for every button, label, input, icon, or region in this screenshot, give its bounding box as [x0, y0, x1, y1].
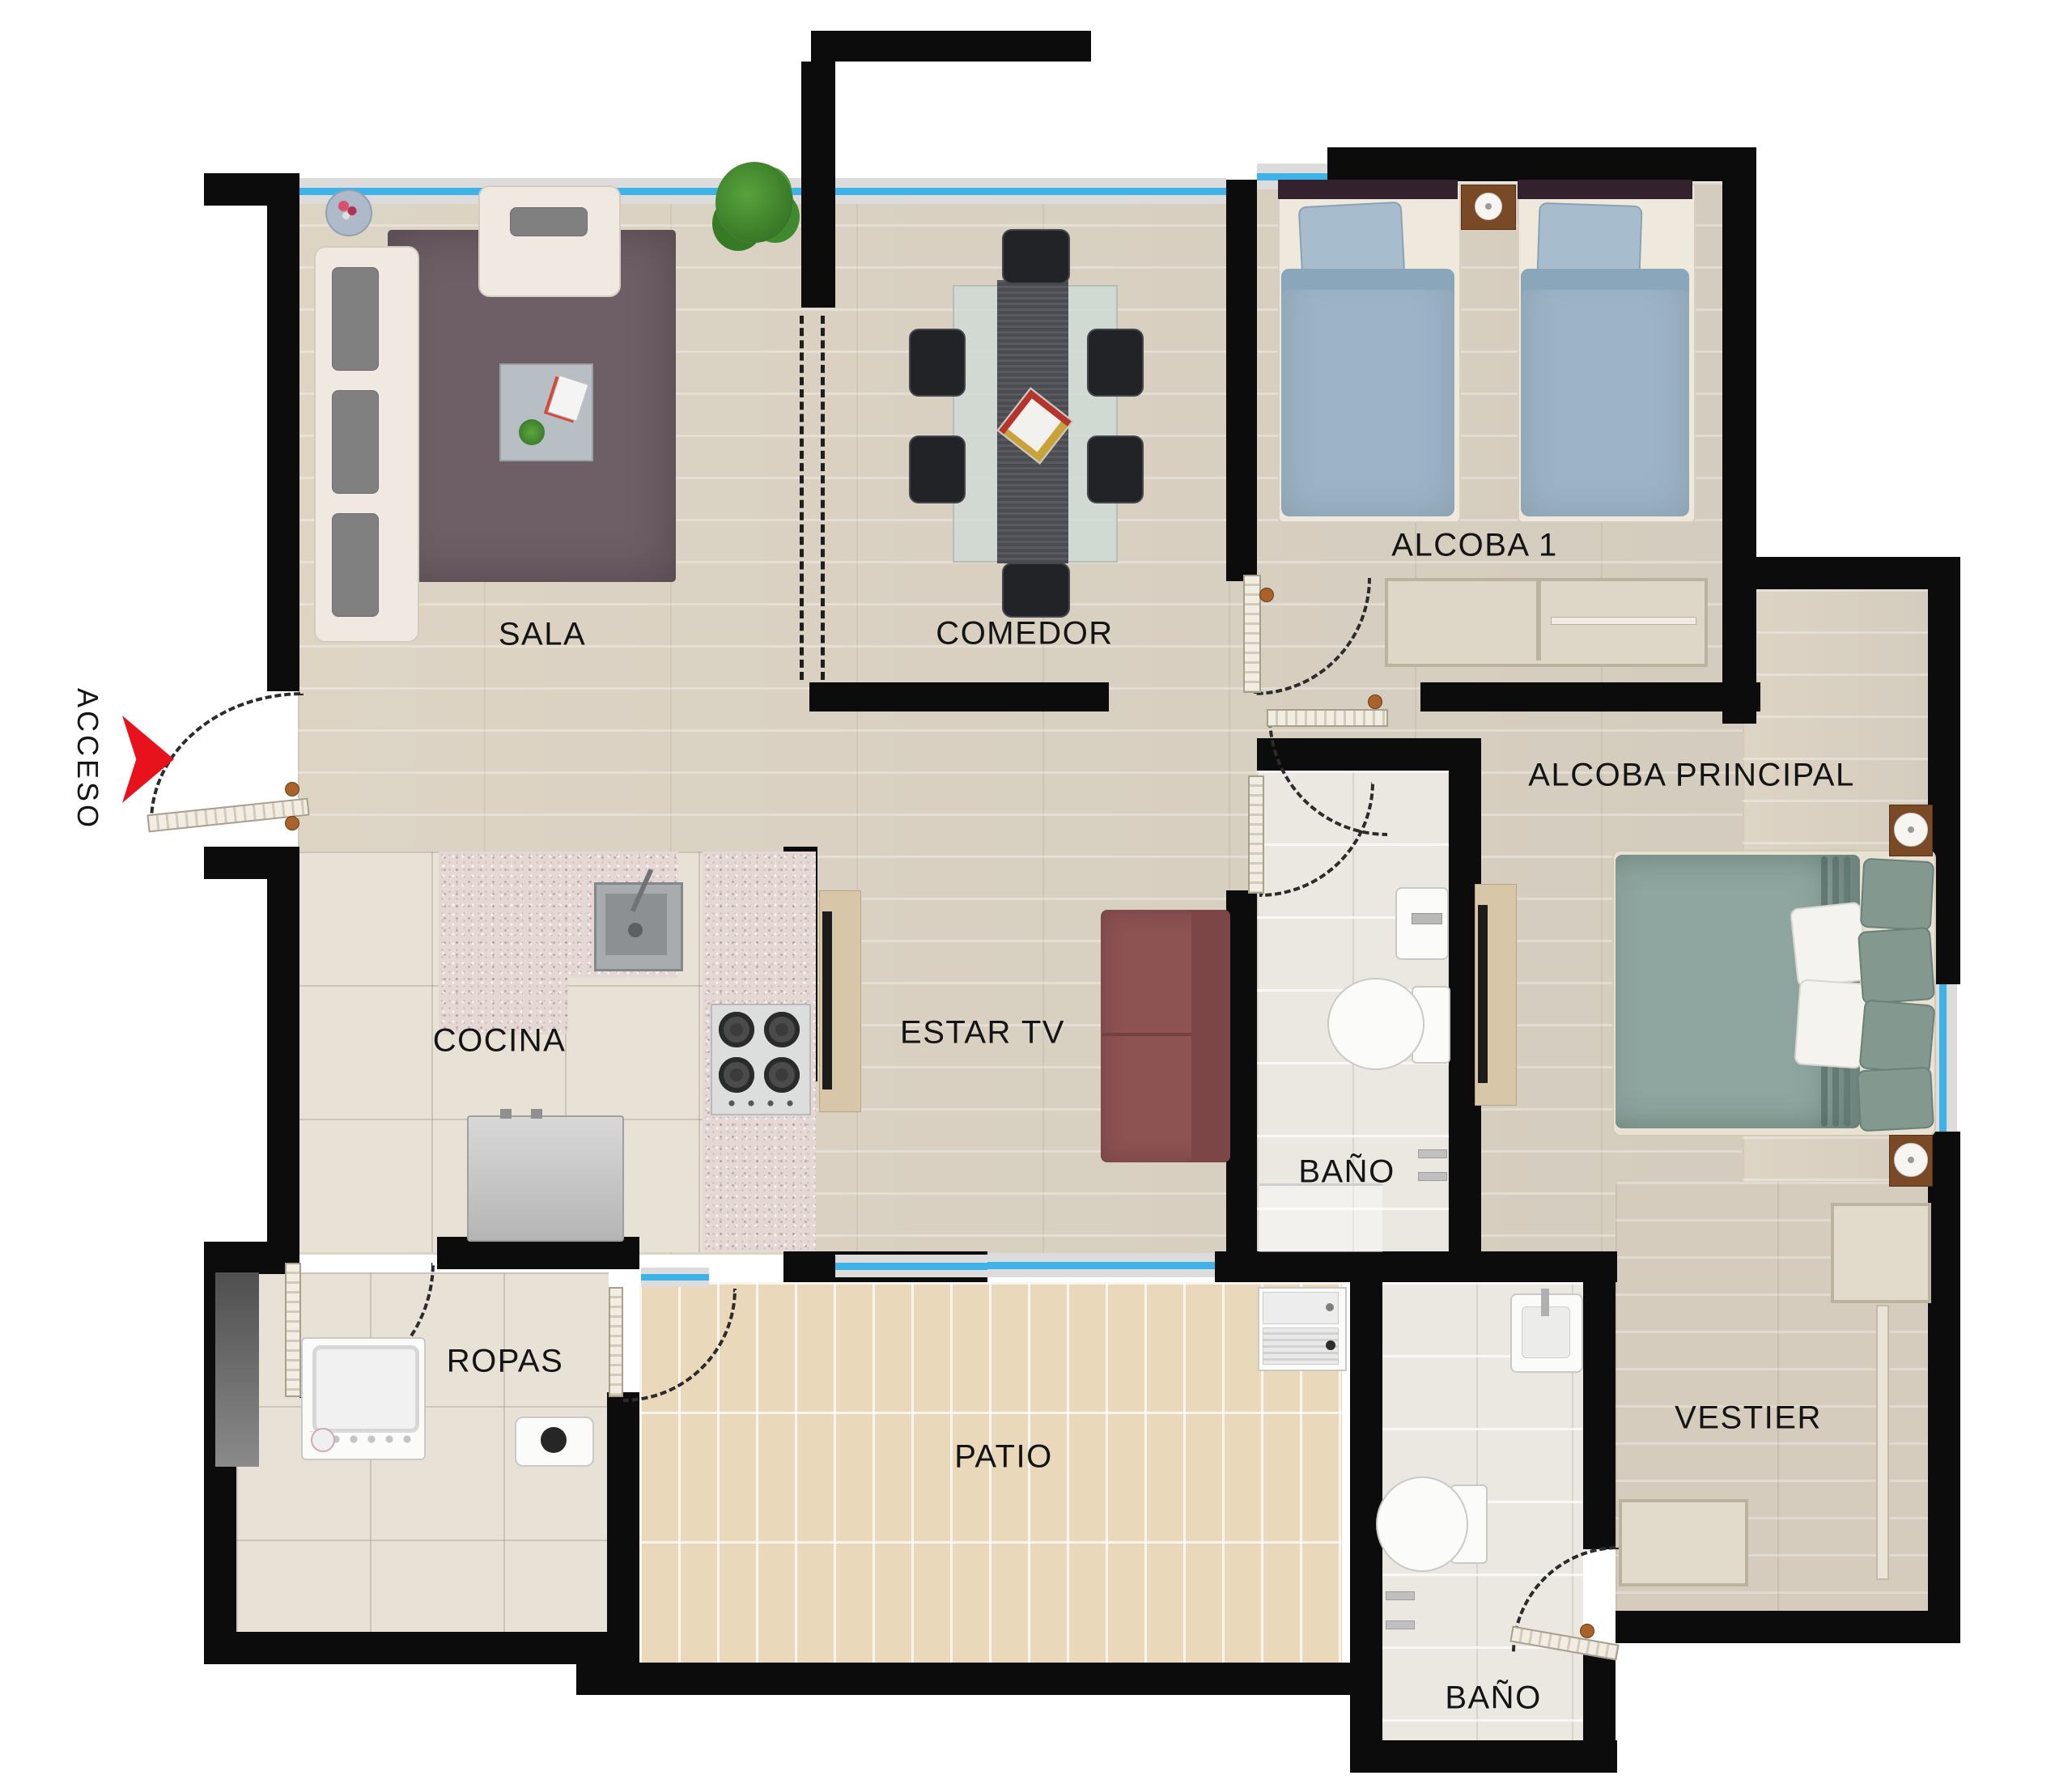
label-bano-social: BAÑO	[1298, 1154, 1395, 1191]
floor-plan: ACCESO SALA COMEDOR ALCOBA 1 ALCOBA PRIN…	[0, 0, 2072, 1784]
lamp	[1894, 813, 1928, 847]
towel-bar	[1386, 1620, 1415, 1629]
table-plant	[519, 419, 545, 445]
wall	[1226, 180, 1257, 581]
wall	[809, 682, 1109, 711]
armchair-cushion	[510, 207, 588, 236]
door-knob	[1368, 694, 1382, 709]
burner	[719, 1057, 754, 1093]
towel-bar	[1386, 1591, 1415, 1600]
headboard	[1518, 180, 1692, 199]
headboard	[1278, 180, 1458, 199]
bano-social-door	[1248, 775, 1264, 894]
dining-chair	[909, 435, 966, 503]
wall	[437, 1237, 639, 1269]
wall	[267, 847, 299, 1272]
fridge-handle	[531, 1109, 542, 1119]
burner	[719, 1012, 754, 1047]
sofa-cushion	[332, 390, 379, 494]
duvet	[1521, 269, 1689, 516]
toilet-bowl	[1327, 978, 1424, 1070]
window-estar-tv-left	[835, 1255, 987, 1277]
wall	[801, 62, 835, 308]
alcoba-principal-door	[1267, 709, 1388, 727]
wall	[1583, 1654, 1616, 1740]
drain-dot	[1326, 1303, 1334, 1311]
faucet	[1541, 1289, 1549, 1316]
wall	[1350, 1740, 1617, 1773]
dining-chair	[909, 329, 966, 397]
wall	[1327, 147, 1756, 181]
wall	[204, 1632, 609, 1664]
cocina-door	[285, 1263, 301, 1397]
tv	[1478, 905, 1488, 1083]
label-comedor: COMEDOR	[936, 616, 1113, 652]
wall	[811, 31, 1091, 62]
lamp	[1894, 1143, 1928, 1177]
pillow	[1857, 1067, 1934, 1132]
sofa-cushion	[332, 267, 379, 371]
sofa-seat-split	[1102, 1033, 1191, 1036]
door-knob	[285, 782, 299, 796]
window-comedor	[835, 178, 1226, 204]
heater-burner	[541, 1427, 567, 1453]
fridge-handle	[500, 1109, 512, 1119]
stove-knobs	[722, 1099, 800, 1107]
closet-divider	[1536, 581, 1541, 661]
wall	[1722, 147, 1756, 724]
label-sala: SALA	[499, 617, 586, 653]
door-knob	[285, 816, 299, 830]
toilet-bowl	[1376, 1476, 1468, 1572]
label-alcoba1: ALCOBA 1	[1391, 528, 1557, 564]
drain-dot	[1326, 1340, 1335, 1350]
dining-chair	[1002, 563, 1070, 618]
armchair	[478, 185, 621, 297]
label-patio: PATIO	[954, 1439, 1053, 1476]
refrigerator	[467, 1115, 624, 1242]
label-cocina: COCINA	[433, 1023, 567, 1060]
label-bano-principal: BAÑO	[1445, 1680, 1541, 1717]
dining-chair	[1087, 435, 1144, 503]
patio-door	[609, 1287, 623, 1397]
burner	[764, 1012, 800, 1047]
wall	[1928, 1182, 1960, 1643]
sofa-estar	[1101, 910, 1230, 1162]
wall	[1226, 890, 1257, 1251]
label-ropas: ROPAS	[447, 1344, 564, 1380]
sofa-cushion	[332, 513, 379, 617]
door-knob	[1259, 588, 1274, 602]
washer-lid	[312, 1345, 419, 1433]
washer-knob	[311, 1428, 335, 1452]
alcoba1-door	[1243, 575, 1261, 693]
closet-rail	[1876, 1305, 1889, 1580]
kitchen-counter	[439, 852, 568, 1034]
plant	[715, 162, 793, 243]
dining-chair	[1002, 229, 1070, 284]
pillow	[1860, 858, 1934, 931]
burner	[764, 1057, 800, 1093]
dining-chair	[1087, 329, 1144, 397]
wall	[1616, 1611, 1960, 1643]
label-alcoba-principal: ALCOBA PRINCIPAL	[1528, 758, 1854, 794]
label-estar-tv: ESTAR TV	[900, 1015, 1065, 1051]
wardrobe	[1831, 1203, 1931, 1303]
flowers	[335, 198, 359, 222]
wall	[1420, 682, 1760, 711]
tv	[822, 911, 832, 1090]
pillow	[1794, 979, 1867, 1069]
towel-bar	[1418, 1172, 1447, 1181]
door-knob	[1580, 1624, 1594, 1638]
projection-line	[800, 316, 804, 680]
window-estar-tv	[987, 1253, 1215, 1277]
label-acceso: ACCESO	[70, 688, 104, 830]
pillow	[1858, 927, 1935, 1005]
wall	[267, 173, 299, 691]
pillow	[1790, 902, 1869, 988]
wall	[607, 1392, 639, 1663]
faucet	[1412, 913, 1442, 924]
shower-area	[1259, 1183, 1382, 1252]
duvet	[1281, 269, 1454, 516]
window-patio	[641, 1268, 709, 1287]
pillow	[1858, 999, 1935, 1074]
label-vestier: VESTIER	[1675, 1400, 1822, 1437]
wardrobe	[1619, 1499, 1748, 1586]
lamp	[1475, 193, 1502, 220]
towel-bar	[1418, 1149, 1447, 1158]
wall	[576, 1663, 1374, 1695]
wall	[1350, 1251, 1617, 1282]
wall	[1740, 557, 1960, 589]
wall	[1583, 1282, 1616, 1549]
sink-drain	[628, 923, 643, 937]
duct-shaft	[215, 1272, 259, 1467]
projection-line	[821, 316, 825, 680]
closet-rod	[1551, 617, 1696, 625]
